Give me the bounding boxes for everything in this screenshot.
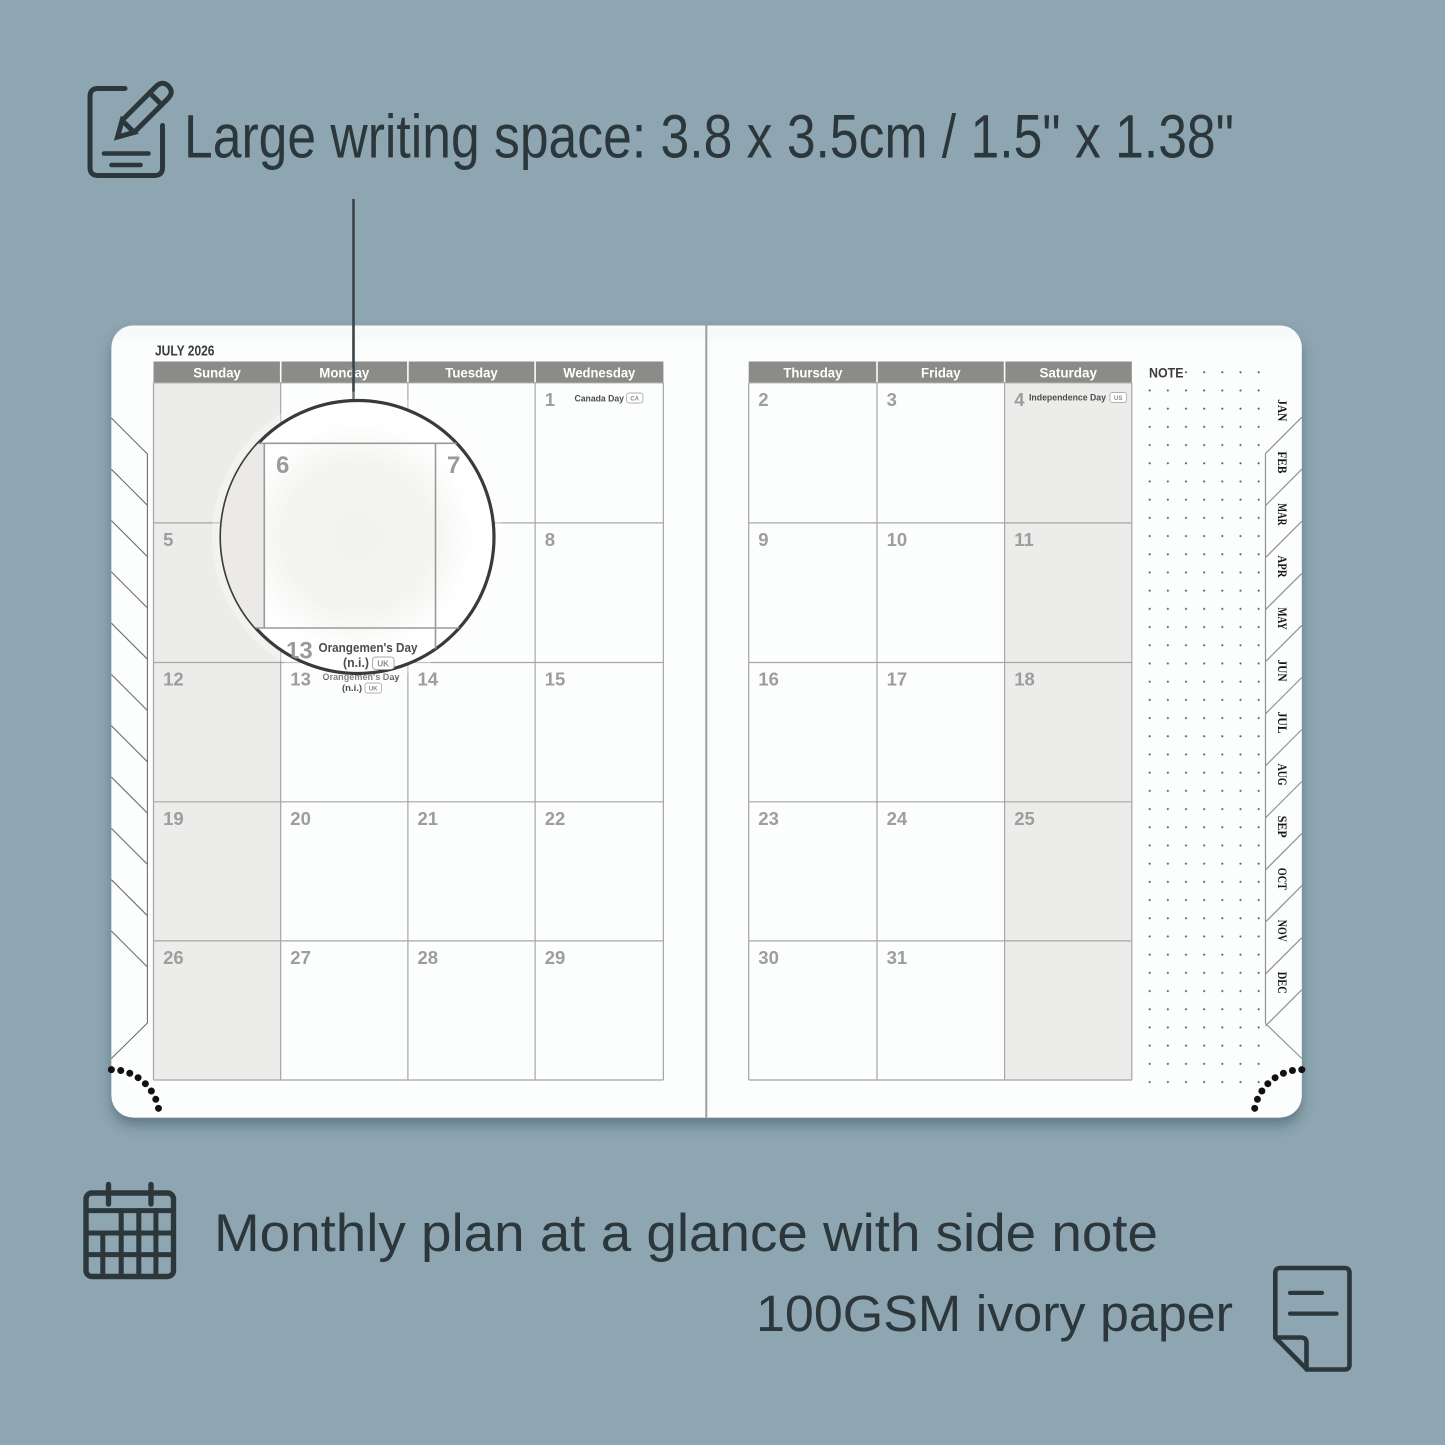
- svg-text:APR: APR: [1275, 556, 1290, 579]
- svg-text:Monthly plan at a glance with: Monthly plan at a glance with side note: [214, 1204, 1158, 1263]
- svg-text:3: 3: [887, 389, 897, 410]
- svg-text:17: 17: [887, 669, 908, 690]
- svg-text:Monday: Monday: [319, 365, 369, 381]
- svg-text:4: 4: [1014, 389, 1025, 410]
- svg-text:7: 7: [447, 452, 460, 479]
- svg-text:Thursday: Thursday: [783, 365, 842, 381]
- svg-text:UK: UK: [369, 686, 378, 693]
- svg-text:1: 1: [545, 389, 555, 410]
- svg-text:2: 2: [758, 389, 768, 410]
- svg-text:19: 19: [163, 808, 184, 829]
- svg-text:25: 25: [1014, 808, 1035, 829]
- svg-text:6: 6: [276, 452, 289, 479]
- svg-text:28: 28: [418, 947, 439, 968]
- svg-text:10: 10: [887, 529, 908, 550]
- svg-text:UK: UK: [377, 659, 389, 668]
- svg-text:DEC: DEC: [1275, 972, 1290, 994]
- svg-text:31: 31: [887, 947, 908, 968]
- svg-text:8: 8: [545, 529, 555, 550]
- svg-text:9: 9: [758, 529, 768, 550]
- svg-text:24: 24: [887, 808, 908, 829]
- svg-text:29: 29: [545, 947, 566, 968]
- svg-text:14: 14: [418, 669, 439, 690]
- svg-text:Independence Day: Independence Day: [1029, 393, 1107, 404]
- svg-text:Friday: Friday: [921, 365, 961, 381]
- svg-text:CA: CA: [630, 396, 639, 403]
- svg-text:22: 22: [545, 808, 566, 829]
- svg-text:(n.i.): (n.i.): [342, 683, 362, 694]
- svg-text:5: 5: [163, 529, 173, 550]
- svg-text:US: US: [1114, 395, 1123, 402]
- svg-text:15: 15: [545, 669, 566, 690]
- svg-text:11: 11: [1014, 529, 1034, 550]
- svg-text:27: 27: [290, 947, 311, 968]
- svg-text:30: 30: [758, 947, 779, 968]
- svg-text:MAY: MAY: [1275, 608, 1290, 630]
- svg-text:21: 21: [418, 808, 439, 829]
- svg-text:Sunday: Sunday: [193, 365, 241, 381]
- svg-text:FEB: FEB: [1275, 451, 1290, 473]
- svg-text:Tuesday: Tuesday: [445, 365, 498, 381]
- svg-text:AUG: AUG: [1275, 764, 1290, 786]
- svg-text:JULY 2026: JULY 2026: [155, 343, 215, 360]
- svg-text:Orangemen's Day: Orangemen's Day: [319, 641, 418, 655]
- svg-text:Saturday: Saturday: [1039, 365, 1097, 381]
- svg-text:20: 20: [290, 808, 311, 829]
- svg-text:JUL: JUL: [1275, 712, 1290, 734]
- svg-text:Wednesday: Wednesday: [563, 365, 635, 381]
- svg-text:NOV: NOV: [1275, 920, 1290, 942]
- svg-text:JUN: JUN: [1275, 660, 1290, 683]
- svg-text:OCT: OCT: [1275, 868, 1290, 890]
- svg-text:Canada Day: Canada Day: [575, 394, 625, 405]
- svg-text:12: 12: [163, 669, 184, 690]
- svg-text:100GSM ivory paper: 100GSM ivory paper: [756, 1285, 1233, 1342]
- svg-text:JAN: JAN: [1275, 399, 1290, 422]
- svg-text:23: 23: [758, 808, 779, 829]
- svg-text:18: 18: [1014, 669, 1035, 690]
- svg-text:Large writing space: 3.8 x 3.5: Large writing space: 3.8 x 3.5cm / 1.5" …: [184, 103, 1234, 171]
- svg-text:(n.i.): (n.i.): [343, 656, 369, 670]
- svg-text:SEP: SEP: [1275, 816, 1290, 838]
- svg-text:26: 26: [163, 947, 184, 968]
- svg-text:MAR: MAR: [1275, 503, 1290, 525]
- svg-text:16: 16: [758, 669, 779, 690]
- svg-text:NOTE: NOTE: [1149, 365, 1184, 381]
